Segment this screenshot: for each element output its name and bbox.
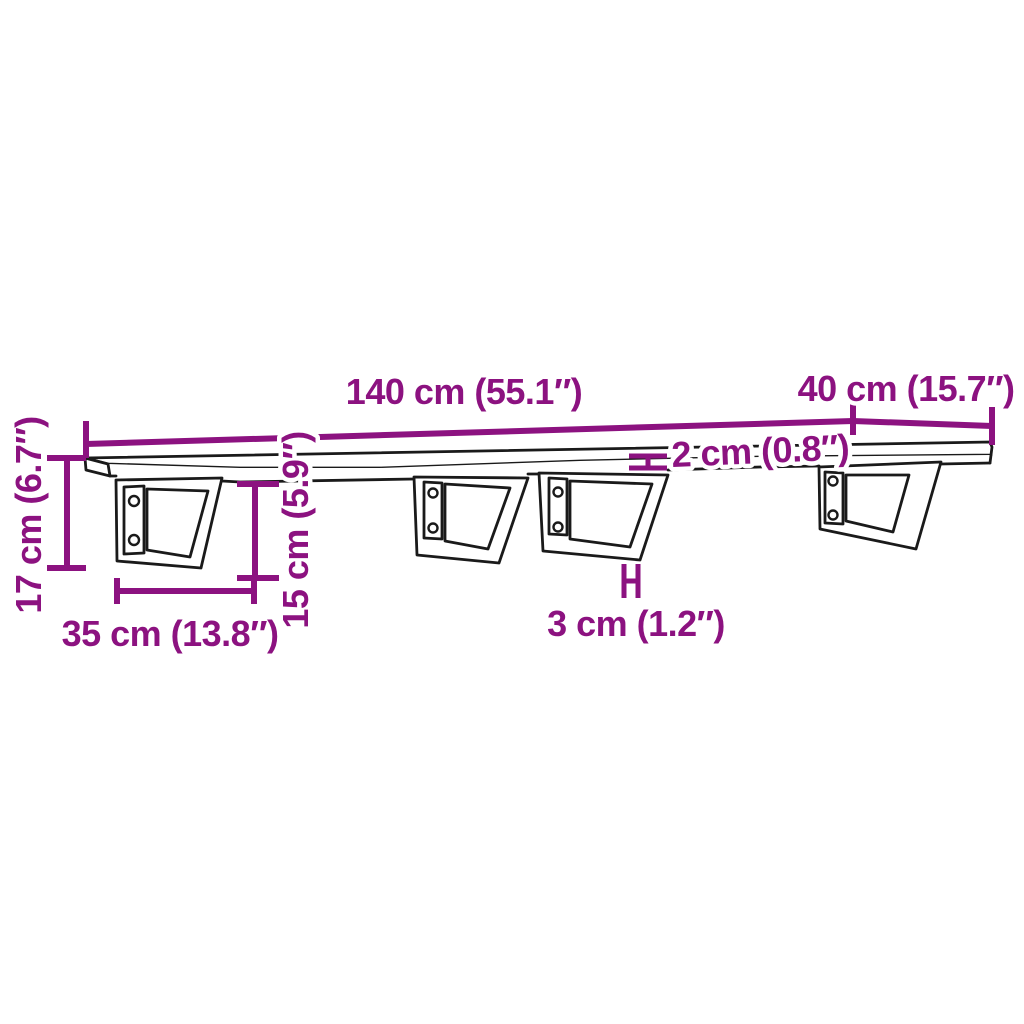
dim-depth-line — [853, 421, 992, 426]
dim-total-height-label: 17 cm (6.7″) — [8, 416, 49, 613]
dim-bracket-height-label: 15 cm (5.9″) — [275, 431, 316, 628]
dim-bracket-depth-label: 35 cm (13.8″) — [62, 613, 279, 654]
dim-depth-label: 40 cm (15.7″) — [798, 368, 1015, 409]
dim-leg-width: 3 cm (1.2″) — [547, 564, 725, 644]
bracket-4-screw-hole-top — [829, 477, 838, 486]
dim-board-thickness-label: 2 cm (0.8″) — [671, 426, 850, 475]
bracket-1-screw-hole-bottom — [129, 535, 139, 545]
dim-total-height: 17 cm (6.7″) — [8, 416, 86, 613]
dim-length-label: 140 cm (55.1″) — [346, 371, 582, 412]
bracket-4-screw-hole-bottom — [829, 511, 838, 520]
bracket-2-screw-hole-top — [429, 489, 438, 498]
dim-bracket-depth: 35 cm (13.8″) — [62, 578, 279, 654]
wall-bracket-4 — [819, 462, 941, 549]
wall-bracket-1 — [116, 478, 222, 568]
bracket-1-screw-hole-top — [129, 496, 139, 506]
dimension-diagram-page: 140 cm (55.1″) 40 cm (15.7″) 17 cm (6.7″… — [0, 0, 1024, 1024]
bracket-3-screw-hole-bottom — [554, 523, 563, 532]
dim-leg-width-label: 3 cm (1.2″) — [547, 603, 725, 644]
shelf-dimension-diagram: 140 cm (55.1″) 40 cm (15.7″) 17 cm (6.7″… — [0, 0, 1024, 1024]
bracket-2-screw-hole-bottom — [429, 524, 438, 533]
wall-bracket-2 — [414, 477, 528, 563]
wall-bracket-3 — [539, 473, 668, 560]
bracket-3-screw-hole-top — [554, 488, 563, 497]
